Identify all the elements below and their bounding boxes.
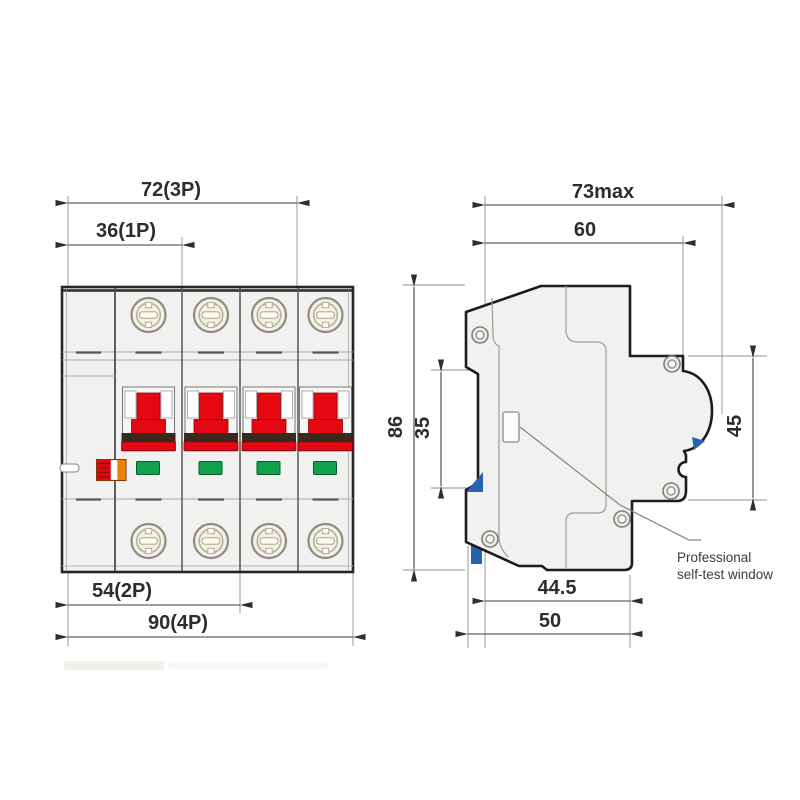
technical-drawing-page: 72(3P) 36(1P) 54(2P) 90(4P) <box>0 0 800 800</box>
side-view: 73max 60 86 35 45 44.5 50 <box>385 181 773 648</box>
dim-45: 45 <box>724 358 753 498</box>
dim-label-36-1p: 36(1P) <box>96 220 156 242</box>
note-line-2: self-test window <box>677 567 773 582</box>
self-test-window <box>503 412 519 442</box>
dim-label-72-3p: 72(3P) <box>141 179 201 201</box>
dim-label-50: 50 <box>539 610 561 632</box>
note-line-1: Professional <box>677 550 751 565</box>
dim-label-45: 45 <box>724 415 746 437</box>
dim-label-35: 35 <box>412 417 434 439</box>
dim-label-60: 60 <box>574 219 596 241</box>
dim-72-3p: 72(3P) <box>68 179 297 203</box>
dim-label-44-5: 44.5 <box>538 577 577 599</box>
dim-50: 50 <box>468 610 630 634</box>
dim-44-5: 44.5 <box>485 577 630 601</box>
rivet-icon <box>614 511 630 527</box>
rivet-icon <box>482 531 498 547</box>
mcb-dimension-drawing: 72(3P) 36(1P) 54(2P) 90(4P) <box>0 0 800 800</box>
dim-35: 35 <box>412 372 441 486</box>
faint-watermark <box>64 661 328 670</box>
front-view: 72(3P) 36(1P) 54(2P) 90(4P) <box>60 179 353 670</box>
dim-label-73max: 73max <box>572 181 634 203</box>
dim-60: 60 <box>485 219 683 243</box>
dim-label-90-4p: 90(4P) <box>148 612 208 634</box>
dim-73max: 73max <box>485 181 722 205</box>
dim-54-2p: 54(2P) <box>68 580 240 605</box>
dim-label-54-2p: 54(2P) <box>92 580 152 602</box>
dim-36-1p: 36(1P) <box>68 220 182 245</box>
dim-90-4p: 90(4P) <box>68 612 353 637</box>
rivet-icon <box>472 327 488 343</box>
fault-indicator-flag <box>97 460 127 481</box>
breaker-side-body <box>466 286 712 570</box>
module-slot <box>60 464 79 472</box>
dim-label-86: 86 <box>385 416 407 438</box>
rivet-icon <box>663 483 679 499</box>
rivet-icon <box>664 356 680 372</box>
dim-86: 86 <box>385 287 414 569</box>
breaker-front-body <box>60 287 353 572</box>
